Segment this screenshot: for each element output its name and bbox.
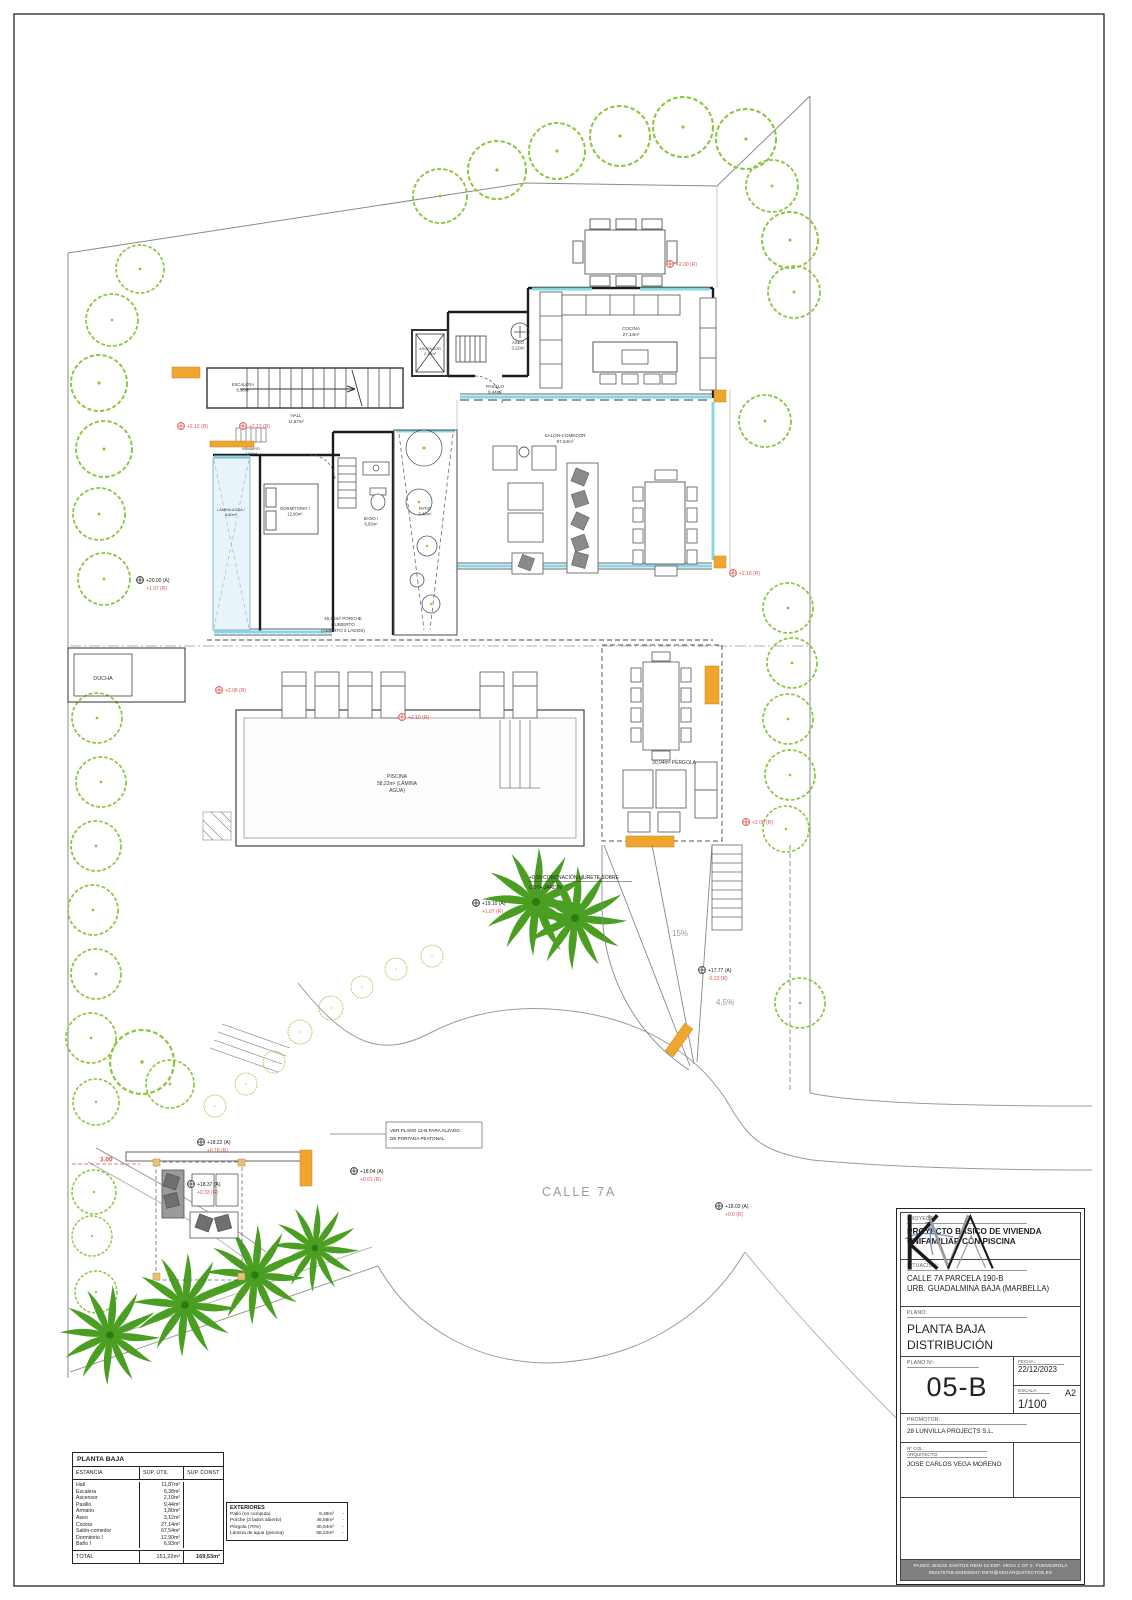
title-block-plan: PLANO: PLANTA BAJA DISTRIBUCIÓN	[901, 1307, 1080, 1357]
col-estancia: ESTANCIA	[73, 1467, 139, 1479]
svg-text:+2.08 (R): +2.08 (R)	[752, 820, 773, 826]
svg-text:3.00: 3.00	[100, 1157, 113, 1164]
svg-text:11,87m²: 11,87m²	[288, 419, 304, 424]
promoter-name: 28 LUNVILLA PROJECTS S.L.	[907, 1428, 1074, 1435]
scale-label: ESCALA:	[1018, 1388, 1050, 1394]
svg-text:PASILLO: PASILLO	[486, 384, 505, 389]
studio-contact: 952476759-634506047-INFO@VEGARQUITECTOS.…	[901, 1570, 1080, 1577]
svg-text:58,22m² (LÁMINA: 58,22m² (LÁMINA	[377, 780, 418, 787]
entrance-court: 3.00	[72, 1150, 312, 1280]
title-block-number-row: PLANO Nº: 05-B FECHA: 22/12/2023 ESCALA:…	[901, 1357, 1080, 1414]
svg-text:ARMARIO: ARMARIO	[242, 447, 260, 451]
terrace-dining-set	[573, 219, 677, 286]
svg-text:(ABIERTO 3 LADOS): (ABIERTO 3 LADOS)	[321, 628, 365, 633]
drawing-sheet: CALLE 7A	[0, 0, 1132, 1600]
marker: +2.12 (R)	[240, 423, 271, 430]
svg-text:+2.12 (R): +2.12 (R)	[187, 424, 208, 430]
svg-text:PATIO: PATIO	[419, 506, 432, 511]
table-row: Aseo3,12m²	[73, 1515, 223, 1522]
studio-address: PASEO JESÚS SANTOS REIN 15 EDF. VEGA 1 O…	[901, 1563, 1080, 1570]
title-block: PROYECTO: PROYECTO BÁSICO DE VIVIENDA UN…	[896, 1208, 1085, 1585]
svg-text:VER PLANO 12-B PARA ALZADO: VER PLANO 12-B PARA ALZADO	[390, 1128, 460, 1133]
exteriores-title: EXTERIORES	[230, 1505, 344, 1511]
drive-slope-label: 4,5%	[716, 998, 734, 1007]
svg-text:ESCALERA: ESCALERA	[232, 382, 255, 387]
paper-format: A2	[1065, 1388, 1076, 1398]
garden-steps	[210, 1024, 290, 1072]
sun-loungers	[282, 672, 537, 718]
svg-text:6,48m²: 6,48m²	[418, 512, 432, 517]
closet-hatch	[456, 336, 486, 362]
sheet-number-label: PLANO Nº:	[907, 1360, 979, 1368]
plan-name-line1: PLANTA BAJA	[907, 1321, 1074, 1337]
svg-text:+0.33 (R): +0.33 (R)	[197, 1190, 218, 1196]
patio	[394, 430, 457, 635]
pergola	[602, 645, 722, 847]
plan-name-line2: DISTRIBUCIÓN	[907, 1337, 1074, 1353]
deck-hatch	[203, 812, 231, 840]
svg-text:+1.07 (R): +1.07 (R)	[482, 909, 503, 915]
svg-text:27,14m²: 27,14m²	[623, 332, 640, 337]
areas-table-planta-baja: PLANTA BAJA ESTANCIA SUP. ÚTIL SUP. CONS…	[72, 1452, 224, 1564]
col-sup-util: SUP. ÚTIL	[139, 1467, 183, 1479]
location-line1: CALLE 7A PARCELA 190-B	[907, 1274, 1074, 1284]
svg-text:CUBIERTO: CUBIERTO	[331, 622, 355, 627]
svg-text:-0.23 (R): -0.23 (R)	[708, 976, 728, 982]
armario-closet	[236, 428, 266, 442]
table-row: Lámina de agua (piscina)58,22m²-	[230, 1531, 344, 1537]
svg-text:8,80m²: 8,80m²	[225, 513, 238, 517]
sheet-number-cell: PLANO Nº: 05-B	[901, 1357, 1014, 1413]
svg-text:HALL: HALL	[291, 413, 303, 418]
kitchen	[540, 292, 716, 390]
water-feature	[213, 458, 250, 630]
marker: +2.12 (R)	[178, 423, 209, 430]
table-row: Hall11,87m²	[73, 1482, 223, 1489]
svg-text:+20.00 (A): +20.00 (A)	[146, 578, 170, 584]
exterior-stairs	[712, 845, 742, 930]
svg-text:3,12m²: 3,12m²	[511, 346, 525, 351]
marker: +18.04 (A)+0.01 (R)	[351, 1168, 384, 1183]
svg-text:DORMITORIO I: DORMITORIO I	[280, 506, 309, 511]
scale-cell: ESCALA: A2 1/100	[1014, 1385, 1080, 1414]
dining-set	[633, 470, 697, 576]
kitchen-island	[593, 342, 677, 384]
svg-text:+0.18 (R): +0.18 (R)	[207, 1148, 228, 1154]
svg-text:+0.0 (R): +0.0 (R)	[725, 1212, 744, 1218]
svg-text:COTA JARDÍN: COTA JARDÍN	[529, 884, 562, 891]
svg-text:67,54m²: 67,54m²	[557, 439, 574, 444]
svg-text:DUCHA: DUCHA	[93, 676, 113, 682]
outdoor-shower	[68, 648, 185, 702]
svg-text:+18.04 (A): +18.04 (A)	[360, 1169, 384, 1175]
street-name-label: CALLE 7A	[542, 1185, 616, 1199]
svg-text:6,93m²: 6,93m²	[364, 522, 378, 527]
architect-name: JOSE CARLOS VEGA MORENO	[907, 1461, 1007, 1468]
svg-text:+0,50 CORONACIÓN MURETE SOBRE: +0,50 CORONACIÓN MURETE SOBRE	[529, 874, 620, 881]
areas-table-title: PLANTA BAJA	[73, 1453, 223, 1467]
walls	[213, 288, 713, 635]
scale-value: 1/100	[1018, 1399, 1076, 1411]
svg-text:+2.08 (R): +2.08 (R)	[225, 688, 246, 694]
svg-text:ASEO: ASEO	[512, 340, 524, 345]
location-line2: URB. GUADALMINA BAJA (MARBELLA)	[907, 1284, 1074, 1294]
kva-logo	[901, 1213, 1001, 1271]
svg-text:LÁMINA AGUA /: LÁMINA AGUA /	[217, 508, 245, 512]
svg-text:6,38m²: 6,38m²	[236, 388, 250, 393]
table-row: Dormitorio I12,90m²	[73, 1535, 223, 1542]
svg-text:+18.22 (A): +18.22 (A)	[207, 1140, 231, 1146]
col-sup-const: SUP. CONST	[183, 1467, 223, 1479]
ramp-slope-label: 15%	[672, 929, 688, 938]
svg-text:+0.01 (R): +0.01 (R)	[360, 1177, 381, 1183]
svg-text:DE PORTADA PEATONAL: DE PORTADA PEATONAL	[390, 1136, 445, 1141]
gate-note: VER PLANO 12-B PARA ALZADO DE PORTADA PE…	[330, 1122, 482, 1148]
svg-text:2,10m²: 2,10m²	[424, 351, 437, 356]
svg-text:+2.00 (R): +2.00 (R)	[676, 262, 697, 268]
marker: +19.10 (A)+1.07 (R)	[473, 900, 506, 915]
signature	[1014, 1443, 1080, 1497]
marker: +2.08 (R)	[743, 819, 774, 826]
title-block-promoter: PROMOTOR: 28 LUNVILLA PROJECTS S.L.	[901, 1414, 1080, 1443]
date-value: 22/12/2023	[1018, 1365, 1076, 1374]
title-block-architect: Nº COL.: ARQUITECTO: JOSE CARLOS VEGA MO…	[901, 1443, 1080, 1498]
svg-text:+19.10 (A): +19.10 (A)	[482, 901, 506, 907]
svg-text:BAÑO I: BAÑO I	[364, 516, 378, 521]
table-row: Ascensor2,10m²	[73, 1495, 223, 1502]
svg-text:30,94m² PÉRGOLA: 30,94m² PÉRGOLA	[652, 759, 697, 766]
svg-text:+17.77 (A): +17.77 (A)	[708, 968, 732, 974]
plan-label: PLANO:	[907, 1310, 1027, 1318]
table-row: Baño I6,93m²	[73, 1541, 223, 1548]
svg-text:+2.10 (R): +2.10 (R)	[408, 715, 429, 721]
areas-table-body: Hall11,87m² Escalera6,38m² Ascensor2,10m…	[73, 1480, 223, 1551]
title-block-footer: PASEO JESÚS SANTOS REIN 15 EDF. VEGA 1 O…	[901, 1560, 1080, 1580]
areas-table-exteriores: EXTERIORES Patio (no computa)6,48m²- Por…	[226, 1502, 348, 1541]
svg-text:SALÓN-COMEDOR: SALÓN-COMEDOR	[544, 432, 586, 438]
svg-text:PISCINA: PISCINA	[387, 774, 408, 780]
marker: +20.00 (A)+1.97 (R)	[137, 577, 170, 592]
marker: +2.10 (R)	[730, 570, 761, 577]
svg-text:+18.03 (A): +18.03 (A)	[725, 1204, 749, 1210]
svg-text:COCINA: COCINA	[622, 326, 641, 331]
svg-text:+2.10 (R): +2.10 (R)	[739, 571, 760, 577]
table-row: Salón-comedor67,54m²	[73, 1528, 223, 1535]
sheet-number: 05-B	[907, 1372, 1007, 1403]
bathroom-fixtures	[338, 458, 389, 510]
table-row: Armario1,80m²	[73, 1508, 223, 1515]
promoter-label: PROMOTOR:	[907, 1417, 1027, 1425]
svg-text:12,90m²: 12,90m²	[287, 512, 303, 517]
marker: +17.77 (A)-0.23 (R)	[699, 967, 732, 982]
shrubs	[110, 945, 443, 1117]
svg-text:1,80m²: 1,80m²	[245, 452, 258, 456]
areas-table-total: TOTAL 151,22m² 169,53m²	[73, 1551, 223, 1563]
marker: +18.03 (A)+0.0 (R)	[716, 1203, 749, 1218]
svg-text:+18.37 (A): +18.37 (A)	[197, 1182, 221, 1188]
svg-text:+1.97 (R): +1.97 (R)	[146, 586, 167, 592]
marker: +2.10 (R)	[399, 714, 430, 721]
table-row: Cocina27,14m²	[73, 1522, 223, 1529]
table-row: Pasillo9,44m²	[73, 1502, 223, 1509]
svg-text:AGUA): AGUA)	[389, 788, 405, 794]
title-block-logo	[901, 1498, 1080, 1560]
marker: +2.00 (R)	[667, 261, 698, 268]
date-cell: FECHA: 22/12/2023	[1014, 1357, 1080, 1385]
table-row: Escalera6,38m²	[73, 1489, 223, 1496]
glazing	[214, 289, 713, 635]
palm-trees	[60, 848, 627, 1385]
architect-label: ARQUITECTO:	[907, 1452, 987, 1458]
living-room-furniture	[493, 446, 697, 576]
svg-text:9,44m²: 9,44m²	[488, 390, 502, 395]
marker: +2.08 (R)	[216, 687, 247, 694]
house	[70, 186, 810, 646]
svg-text:+2.12 (R): +2.12 (R)	[249, 424, 270, 430]
svg-text:46,58m² PORCHE: 46,58m² PORCHE	[324, 616, 362, 621]
areas-table-header: ESTANCIA SUP. ÚTIL SUP. CONST	[73, 1467, 223, 1480]
